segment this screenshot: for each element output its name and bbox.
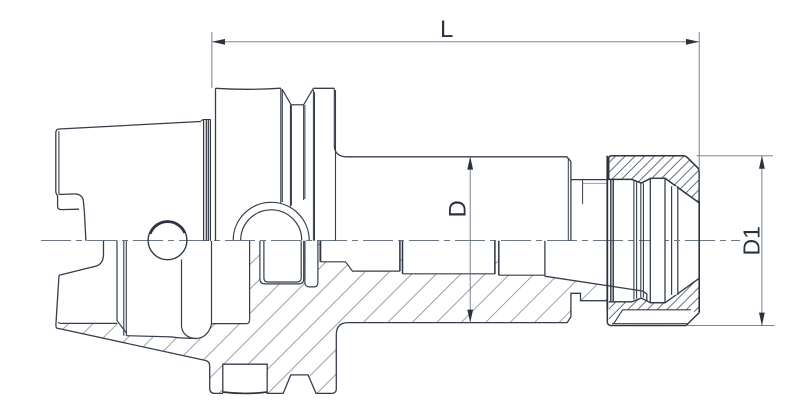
svg-text:D1: D1	[738, 226, 764, 255]
svg-text:D: D	[444, 200, 471, 217]
svg-text:L: L	[440, 16, 453, 43]
